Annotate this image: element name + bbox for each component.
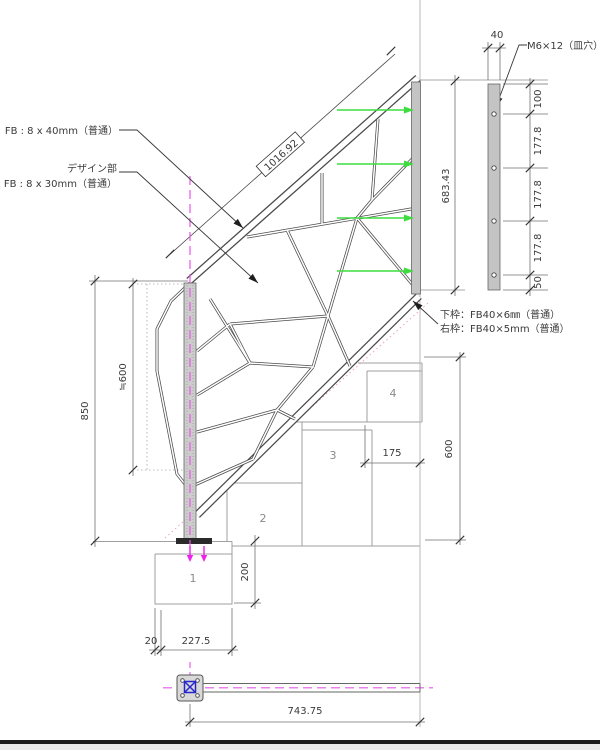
dim-spacing-100: 100 [533,89,544,108]
dim-stair-height: 600 [444,439,455,458]
annotation-texts: FB : 8 x 40mm（普通） デザイン部 FB : 8 x 30mm（普通… [4,30,600,717]
plan-detail [163,662,433,701]
dim-spacing-177-c: 177.8 [533,234,544,263]
label-fb30: FB : 8 x 30mm（普通） [4,177,117,190]
step-number-2: 2 [260,512,267,525]
dimension-lines [89,42,548,727]
screw-hole [492,273,496,277]
frame-plate-detail [488,84,500,290]
stair-profile [93,363,422,604]
step-number-4: 4 [390,387,397,400]
dim-design-height: ≒600 [118,363,129,390]
dim-tread-depth: 175 [382,448,401,459]
dim-rail-length: 1016.92 [256,132,305,177]
dim-plan-length: 743.75 [288,706,323,717]
label-design-part: デザイン部 [67,162,117,175]
screw-hole [492,112,496,116]
dim-spacing-50: 50 [533,276,544,289]
dim-spacing-177-a: 177.8 [533,127,544,156]
step-3-outline [294,422,372,546]
dim-foundation-height: 200 [240,562,251,581]
dim-foundation-offset: 20 [145,636,158,647]
window-bottom-edge [0,740,600,750]
dim-foundation-width: 227.5 [182,636,211,647]
dim-spacing-177-b: 177.8 [533,180,544,209]
label-bottom-frame: 下枠：FB40×6㎜（普通） [440,308,560,321]
dimension-ticks [91,44,534,726]
dim-panel-height: 683.43 [441,169,452,204]
label-fb40: FB : 8 x 40mm（普通） [5,124,118,137]
step-number-3: 3 [330,449,337,462]
step-2-outline [227,422,302,546]
panel-right-frame-bar [412,82,421,294]
dim-plate-width: 40 [491,30,504,41]
base-plate [176,538,212,544]
drawing-canvas: FB : 8 x 40mm（普通） デザイン部 FB : 8 x 30mm（普通… [0,0,600,750]
label-right-frame: 右枠：FB40×5mm（普通） [440,322,570,335]
dim-post-height: 850 [80,401,91,420]
label-screw: M6×12（皿穴） [527,39,600,52]
step-number-1: 1 [190,572,197,585]
screw-hole [492,166,496,170]
screw-hole [492,219,496,223]
